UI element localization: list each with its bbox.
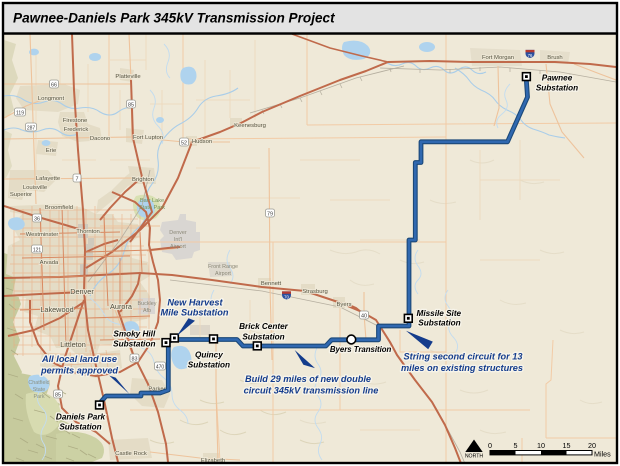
svg-text:5: 5 [514, 441, 518, 450]
svg-text:Erie: Erie [46, 148, 57, 154]
svg-text:Airport: Airport [170, 244, 186, 250]
svg-text:40: 40 [361, 313, 367, 319]
svg-text:Substation: Substation [418, 319, 460, 328]
svg-text:Louisville: Louisville [23, 185, 48, 191]
svg-text:Keenesburg: Keenesburg [234, 123, 266, 129]
svg-text:Front Range: Front Range [208, 264, 238, 270]
svg-text:String second circuit for 13: String second circuit for 13 [404, 352, 523, 362]
svg-text:Miles: Miles [594, 449, 611, 458]
svg-text:Smoky Hill: Smoky Hill [113, 329, 156, 338]
svg-text:Lafayette: Lafayette [36, 176, 61, 182]
svg-text:Byers: Byers [336, 302, 351, 308]
svg-text:Airport: Airport [215, 271, 231, 277]
svg-text:Mile Substation: Mile Substation [161, 307, 229, 317]
svg-text:70: 70 [284, 294, 289, 299]
svg-text:Quincy: Quincy [195, 351, 223, 360]
svg-text:Substation: Substation [242, 332, 284, 341]
svg-text:10: 10 [537, 441, 545, 450]
svg-text:Daniels Park: Daniels Park [56, 413, 106, 422]
svg-text:Broomfield: Broomfield [45, 205, 73, 211]
svg-text:Longmont: Longmont [38, 96, 65, 102]
svg-text:NORTH: NORTH [465, 453, 484, 459]
svg-text:15: 15 [563, 441, 571, 450]
svg-text:287: 287 [27, 125, 36, 131]
svg-text:Castle Rock: Castle Rock [115, 451, 147, 457]
svg-text:Superior: Superior [10, 192, 32, 198]
svg-text:Firestone: Firestone [63, 118, 88, 124]
svg-text:0: 0 [488, 441, 492, 450]
svg-text:Fort Morgan: Fort Morgan [482, 55, 514, 61]
svg-text:Arvada: Arvada [40, 260, 59, 266]
svg-text:Buckley: Buckley [138, 301, 157, 307]
svg-text:circuit 345kV transmission lin: circuit 345kV transmission line [244, 386, 379, 396]
svg-text:Brick Center: Brick Center [239, 322, 289, 331]
svg-text:79: 79 [267, 211, 273, 217]
svg-text:Afb: Afb [143, 308, 151, 314]
svg-text:Missile Site: Missile Site [417, 309, 462, 318]
svg-text:Platteville: Platteville [115, 74, 141, 80]
svg-text:470: 470 [156, 364, 165, 370]
svg-text:miles on existing structures: miles on existing structures [401, 363, 523, 373]
svg-text:85: 85 [55, 392, 61, 398]
svg-text:7: 7 [76, 176, 79, 182]
svg-text:State Park: State Park [139, 205, 165, 211]
svg-text:Substation: Substation [536, 83, 578, 92]
svg-text:Substation: Substation [113, 339, 155, 348]
svg-text:Strasburg: Strasburg [302, 289, 328, 295]
svg-text:New Harvest: New Harvest [167, 297, 223, 307]
svg-text:36: 36 [34, 216, 40, 222]
svg-text:Substation: Substation [59, 423, 101, 432]
svg-text:76: 76 [528, 53, 533, 58]
svg-text:Park: Park [33, 394, 44, 400]
svg-text:Build 29 miles of new double: Build 29 miles of new double [245, 374, 371, 384]
svg-text:Barr Lake: Barr Lake [140, 198, 164, 204]
svg-text:Thornton: Thornton [76, 229, 100, 235]
svg-text:Frederick: Frederick [64, 127, 89, 133]
svg-text:Pawnee-Daniels Park 345kV Tran: Pawnee-Daniels Park 345kV Transmission P… [13, 11, 335, 26]
svg-text:Byers Transition: Byers Transition [330, 345, 392, 354]
svg-text:Littleton: Littleton [60, 340, 86, 349]
svg-text:Fort Lupton: Fort Lupton [133, 135, 163, 141]
svg-text:Denver: Denver [169, 230, 187, 236]
svg-text:52: 52 [181, 140, 187, 146]
svg-text:Brush: Brush [547, 55, 562, 61]
svg-text:Chatfield: Chatfield [28, 380, 49, 386]
svg-text:permits approved: permits approved [40, 366, 118, 376]
svg-text:Denver: Denver [70, 287, 94, 296]
svg-text:66: 66 [51, 82, 57, 88]
svg-text:85: 85 [128, 102, 134, 108]
svg-text:Substation: Substation [188, 360, 230, 369]
svg-text:Bennett: Bennett [261, 281, 282, 287]
svg-text:83: 83 [132, 356, 138, 362]
svg-text:Westminster: Westminster [26, 232, 59, 238]
svg-text:State: State [33, 387, 46, 393]
svg-text:121: 121 [33, 247, 42, 253]
svg-text:119: 119 [16, 110, 24, 116]
svg-text:All local land use: All local land use [41, 354, 117, 364]
svg-text:Int'l: Int'l [174, 237, 182, 243]
svg-text:Pawnee: Pawnee [542, 73, 573, 82]
svg-text:Lakewood: Lakewood [40, 305, 73, 314]
svg-text:Aurora: Aurora [110, 302, 133, 311]
svg-text:Dacono: Dacono [90, 136, 111, 142]
svg-text:Brighton: Brighton [132, 177, 154, 183]
svg-text:Hudson: Hudson [192, 139, 212, 145]
